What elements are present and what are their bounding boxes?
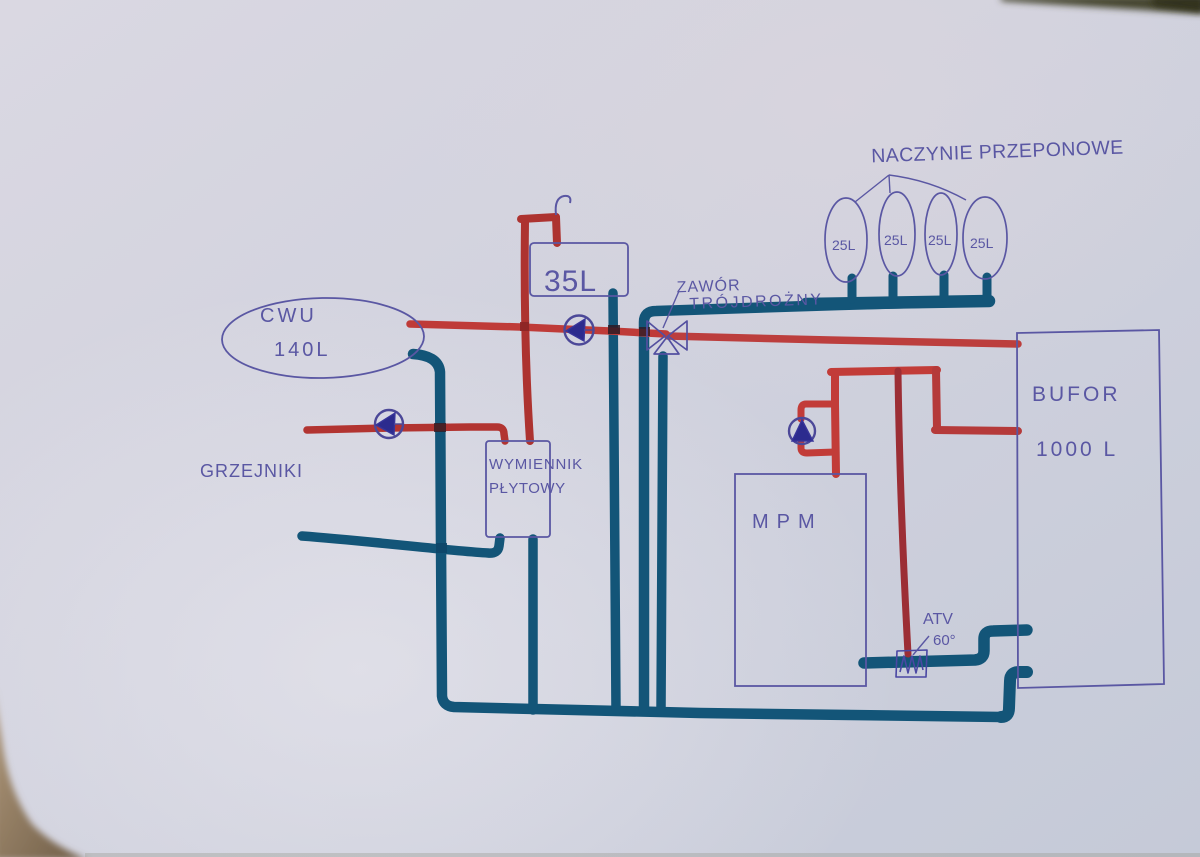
svg-text:CWU: CWU	[260, 305, 317, 327]
svg-text:25L: 25L	[970, 235, 994, 251]
svg-text:BUFOR: BUFOR	[1032, 383, 1121, 406]
svg-text:ZAWÓR: ZAWÓR	[676, 275, 741, 296]
svg-text:25L: 25L	[884, 232, 908, 248]
svg-text:GRZEJNIKI: GRZEJNIKI	[200, 461, 303, 481]
svg-text:140L: 140L	[274, 339, 331, 361]
svg-text:PŁYTOWY: PŁYTOWY	[489, 480, 566, 497]
svg-text:35L: 35L	[544, 265, 597, 298]
svg-text:MPM: MPM	[752, 511, 823, 533]
svg-text:WYMIENNIK: WYMIENNIK	[489, 456, 583, 473]
svg-text:25L: 25L	[832, 237, 856, 253]
svg-text:60°: 60°	[933, 632, 956, 649]
svg-text:ATV: ATV	[923, 611, 953, 628]
svg-text:25L: 25L	[928, 232, 952, 248]
svg-text:1000 L: 1000 L	[1036, 438, 1118, 461]
